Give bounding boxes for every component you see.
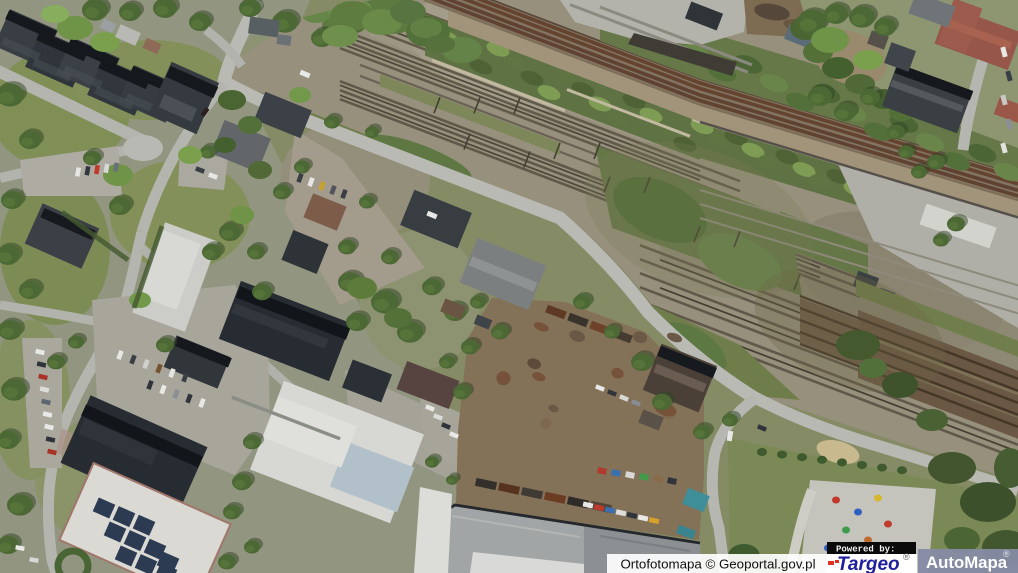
svg-text:AutoMapa: AutoMapa (926, 553, 1008, 572)
svg-text:®: ® (1003, 549, 1010, 559)
svg-text:Ortofotomapa © Geoportal.gov.p: Ortofotomapa © Geoportal.gov.pl (620, 557, 815, 572)
svg-text:®: ® (903, 552, 910, 562)
svg-text:Powered by:: Powered by: (836, 545, 895, 555)
svg-text:Targeo: Targeo (837, 554, 900, 573)
